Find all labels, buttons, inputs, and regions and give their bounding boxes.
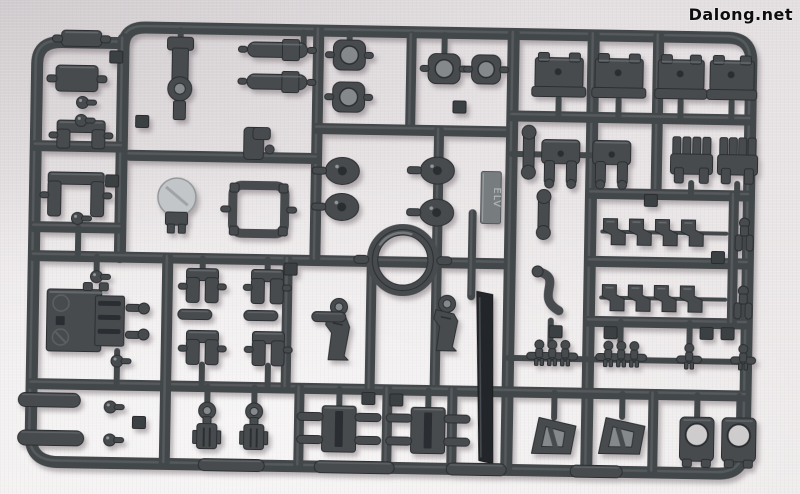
part-blade	[474, 291, 496, 463]
part-dome	[157, 178, 196, 234]
runner-segment	[369, 259, 372, 389]
part-pill	[18, 430, 84, 446]
part-foot	[532, 52, 587, 97]
part-tab	[711, 251, 724, 263]
part-tab	[284, 263, 297, 275]
part-pincluster	[676, 343, 701, 369]
part-pill	[18, 392, 80, 407]
part-tab	[604, 327, 617, 339]
part-zpart	[680, 286, 702, 312]
sprue-runner: ELV	[17, 23, 763, 480]
part-triframe	[531, 417, 576, 454]
sprue-photo: ELV Dalong.net	[0, 0, 800, 494]
part-claw	[717, 138, 758, 185]
part-zpart	[655, 219, 677, 245]
runner-segment	[129, 153, 317, 158]
part-ringcyl	[239, 403, 268, 450]
part-ballpin	[104, 401, 124, 413]
part-knee	[325, 298, 350, 360]
part-sqhole	[679, 417, 714, 468]
part-tab	[362, 392, 375, 404]
part-tab	[106, 175, 119, 187]
runner-segment	[585, 33, 594, 471]
part-ringsq	[325, 40, 374, 71]
part-hand	[541, 139, 580, 188]
runner-segment	[385, 388, 387, 468]
part-zpart	[603, 219, 625, 245]
runner-segment	[505, 32, 514, 470]
part-plate: ELV	[480, 171, 502, 223]
svg-text:ELV: ELV	[491, 187, 502, 208]
part-grooveblock	[296, 405, 381, 452]
part-pill	[244, 310, 278, 321]
part-tab	[721, 328, 734, 340]
part-tab	[453, 101, 466, 113]
part-ringsq	[420, 53, 469, 84]
runner-segment	[285, 258, 288, 388]
runner-segment	[297, 386, 299, 466]
part-tab	[132, 416, 145, 428]
part-tab	[700, 327, 713, 339]
part-tab	[644, 194, 657, 206]
part-pill	[312, 311, 346, 322]
part-tab	[136, 115, 149, 127]
watermark: Dalong.net	[689, 5, 793, 24]
part-bone	[521, 125, 536, 179]
part-foot	[707, 55, 758, 100]
part-pincluster	[595, 341, 646, 367]
part-triframe	[598, 418, 645, 455]
part-ballpin	[104, 434, 124, 446]
part-zpart	[602, 285, 624, 311]
runner-segment	[651, 392, 653, 472]
runner-segment	[163, 256, 168, 464]
runner-segment	[409, 34, 412, 130]
part-foot	[592, 53, 647, 98]
part-pill	[314, 461, 394, 474]
runner-segment	[450, 389, 452, 469]
part-bone	[536, 189, 551, 239]
part-disc	[406, 199, 453, 227]
part-disc	[407, 157, 454, 185]
part-cylinder	[238, 71, 316, 93]
part-pill	[570, 465, 622, 478]
part-pill	[198, 459, 264, 472]
part-scurve	[531, 266, 559, 311]
part-hand	[592, 140, 631, 189]
part-polering	[166, 37, 193, 120]
gate-stub	[78, 227, 79, 256]
part-lump	[47, 65, 107, 92]
part-ringsq	[324, 82, 373, 113]
part-tab	[390, 394, 403, 406]
runner-segment	[511, 114, 750, 120]
runner-segment	[731, 194, 734, 324]
sprue-drawing: ELV	[0, 0, 800, 494]
part-pill	[446, 463, 506, 476]
part-tab	[549, 326, 562, 338]
part-claw	[670, 137, 713, 184]
runner-segment	[470, 211, 472, 296]
part-ubracket	[40, 172, 113, 217]
part-pincluster	[527, 340, 578, 366]
runner-segment	[588, 319, 747, 324]
part-zpart	[654, 285, 676, 311]
runner-segment	[314, 29, 319, 261]
part-foot	[655, 54, 708, 99]
part-pill	[178, 309, 212, 320]
runner-segment	[316, 127, 512, 132]
part-ballpin	[76, 96, 96, 108]
part-zpart	[628, 285, 650, 311]
part-ballpin	[111, 355, 131, 367]
runner-segment	[35, 144, 122, 148]
part-bigblock	[46, 282, 150, 353]
part-zpart	[681, 220, 703, 246]
part-ringcyl	[193, 402, 222, 449]
part-rectframe	[220, 183, 297, 236]
part-ringsq	[463, 55, 508, 85]
part-ubracket	[178, 330, 227, 365]
part-grooveblock	[385, 407, 470, 454]
part-zpart	[629, 219, 651, 245]
part-sqhole	[721, 418, 756, 469]
part-ubracket	[178, 268, 227, 303]
part-tab	[110, 51, 123, 63]
runner-segment	[590, 191, 749, 196]
part-ballpin	[90, 271, 110, 283]
